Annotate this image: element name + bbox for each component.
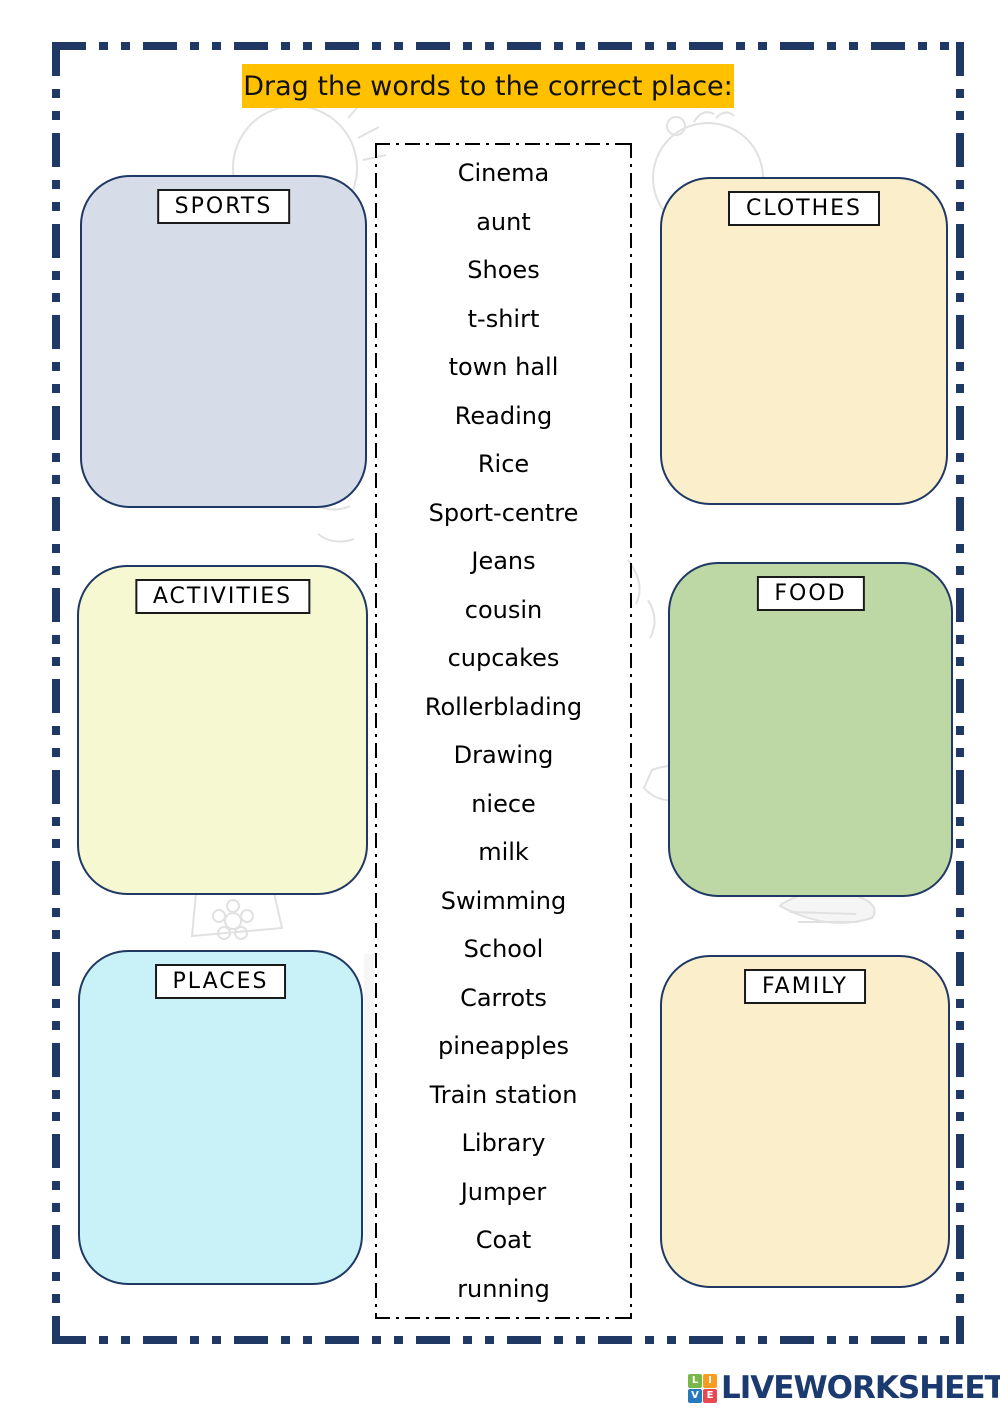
draggable-word[interactable]: Train station [379,1071,628,1120]
draggable-word[interactable]: cousin [379,586,628,635]
liveworksheets-logo-icon: L I V E [688,1374,717,1403]
draggable-word[interactable]: cupcakes [379,634,628,683]
draggable-word[interactable]: Rice [379,440,628,489]
draggable-word[interactable]: Jumper [379,1168,628,1217]
dropzone-places[interactable]: PLACES [78,950,363,1285]
word-bank-border-bottom [375,1317,632,1319]
word-bank-border-left [375,143,377,1319]
dropzone-food[interactable]: FOOD [668,562,953,897]
dropzone-family[interactable]: FAMILY [660,955,950,1288]
page-border-left [52,42,60,1344]
logo-square-e: E [703,1389,717,1403]
draggable-word[interactable]: running [379,1265,628,1314]
draggable-word[interactable]: Cinema [379,149,628,198]
page-border-right [956,42,964,1344]
page-border-top [52,42,964,50]
draggable-word[interactable]: t-shirt [379,295,628,344]
draggable-word[interactable]: Shoes [379,246,628,295]
liveworksheets-wordmark: LIVEWORKSHEETS [721,1370,1000,1406]
dropzone-sports[interactable]: SPORTS [80,175,367,508]
draggable-word[interactable]: Swimming [379,877,628,926]
dropzone-food-label: FOOD [756,576,864,611]
dropzone-family-label: FAMILY [744,969,866,1004]
instruction-banner: Drag the words to the correct place: [242,64,734,108]
dropzone-clothes-label: CLOTHES [728,191,880,226]
dropzone-activities-label: ACTIVITIES [135,579,310,614]
word-bank-items: CinemaauntShoest-shirttown hallReadingRi… [379,149,628,1313]
logo-square-v: V [688,1389,702,1403]
word-bank-border-right [630,143,632,1319]
liveworksheets-logo[interactable]: L I V E LIVEWORKSHEETS [688,1366,1000,1410]
draggable-word[interactable]: School [379,925,628,974]
dropzone-activities[interactable]: ACTIVITIES [77,565,368,895]
dropzone-clothes[interactable]: CLOTHES [660,177,948,505]
draggable-word[interactable]: Coat [379,1216,628,1265]
instruction-text: Drag the words to the correct place: [243,71,733,102]
logo-square-i: I [703,1374,717,1388]
draggable-word[interactable]: niece [379,780,628,829]
draggable-word[interactable]: Drawing [379,731,628,780]
draggable-word[interactable]: Carrots [379,974,628,1023]
draggable-word[interactable]: Reading [379,392,628,441]
draggable-word[interactable]: Library [379,1119,628,1168]
logo-square-l: L [688,1374,702,1388]
draggable-word[interactable]: milk [379,828,628,877]
worksheet-page: Drag the words to the correct place: SPO… [0,0,1000,1414]
dropzone-sports-label: SPORTS [157,189,291,224]
draggable-word[interactable]: pineapples [379,1022,628,1071]
draggable-word[interactable]: Rollerblading [379,683,628,732]
draggable-word[interactable]: Jeans [379,537,628,586]
draggable-word[interactable]: Sport-centre [379,489,628,538]
draggable-word[interactable]: aunt [379,198,628,247]
draggable-word[interactable]: town hall [379,343,628,392]
word-bank: CinemaauntShoest-shirttown hallReadingRi… [375,143,632,1319]
page-border-bottom [52,1336,964,1344]
word-bank-border-top [375,143,632,145]
dropzone-places-label: PLACES [155,964,287,999]
